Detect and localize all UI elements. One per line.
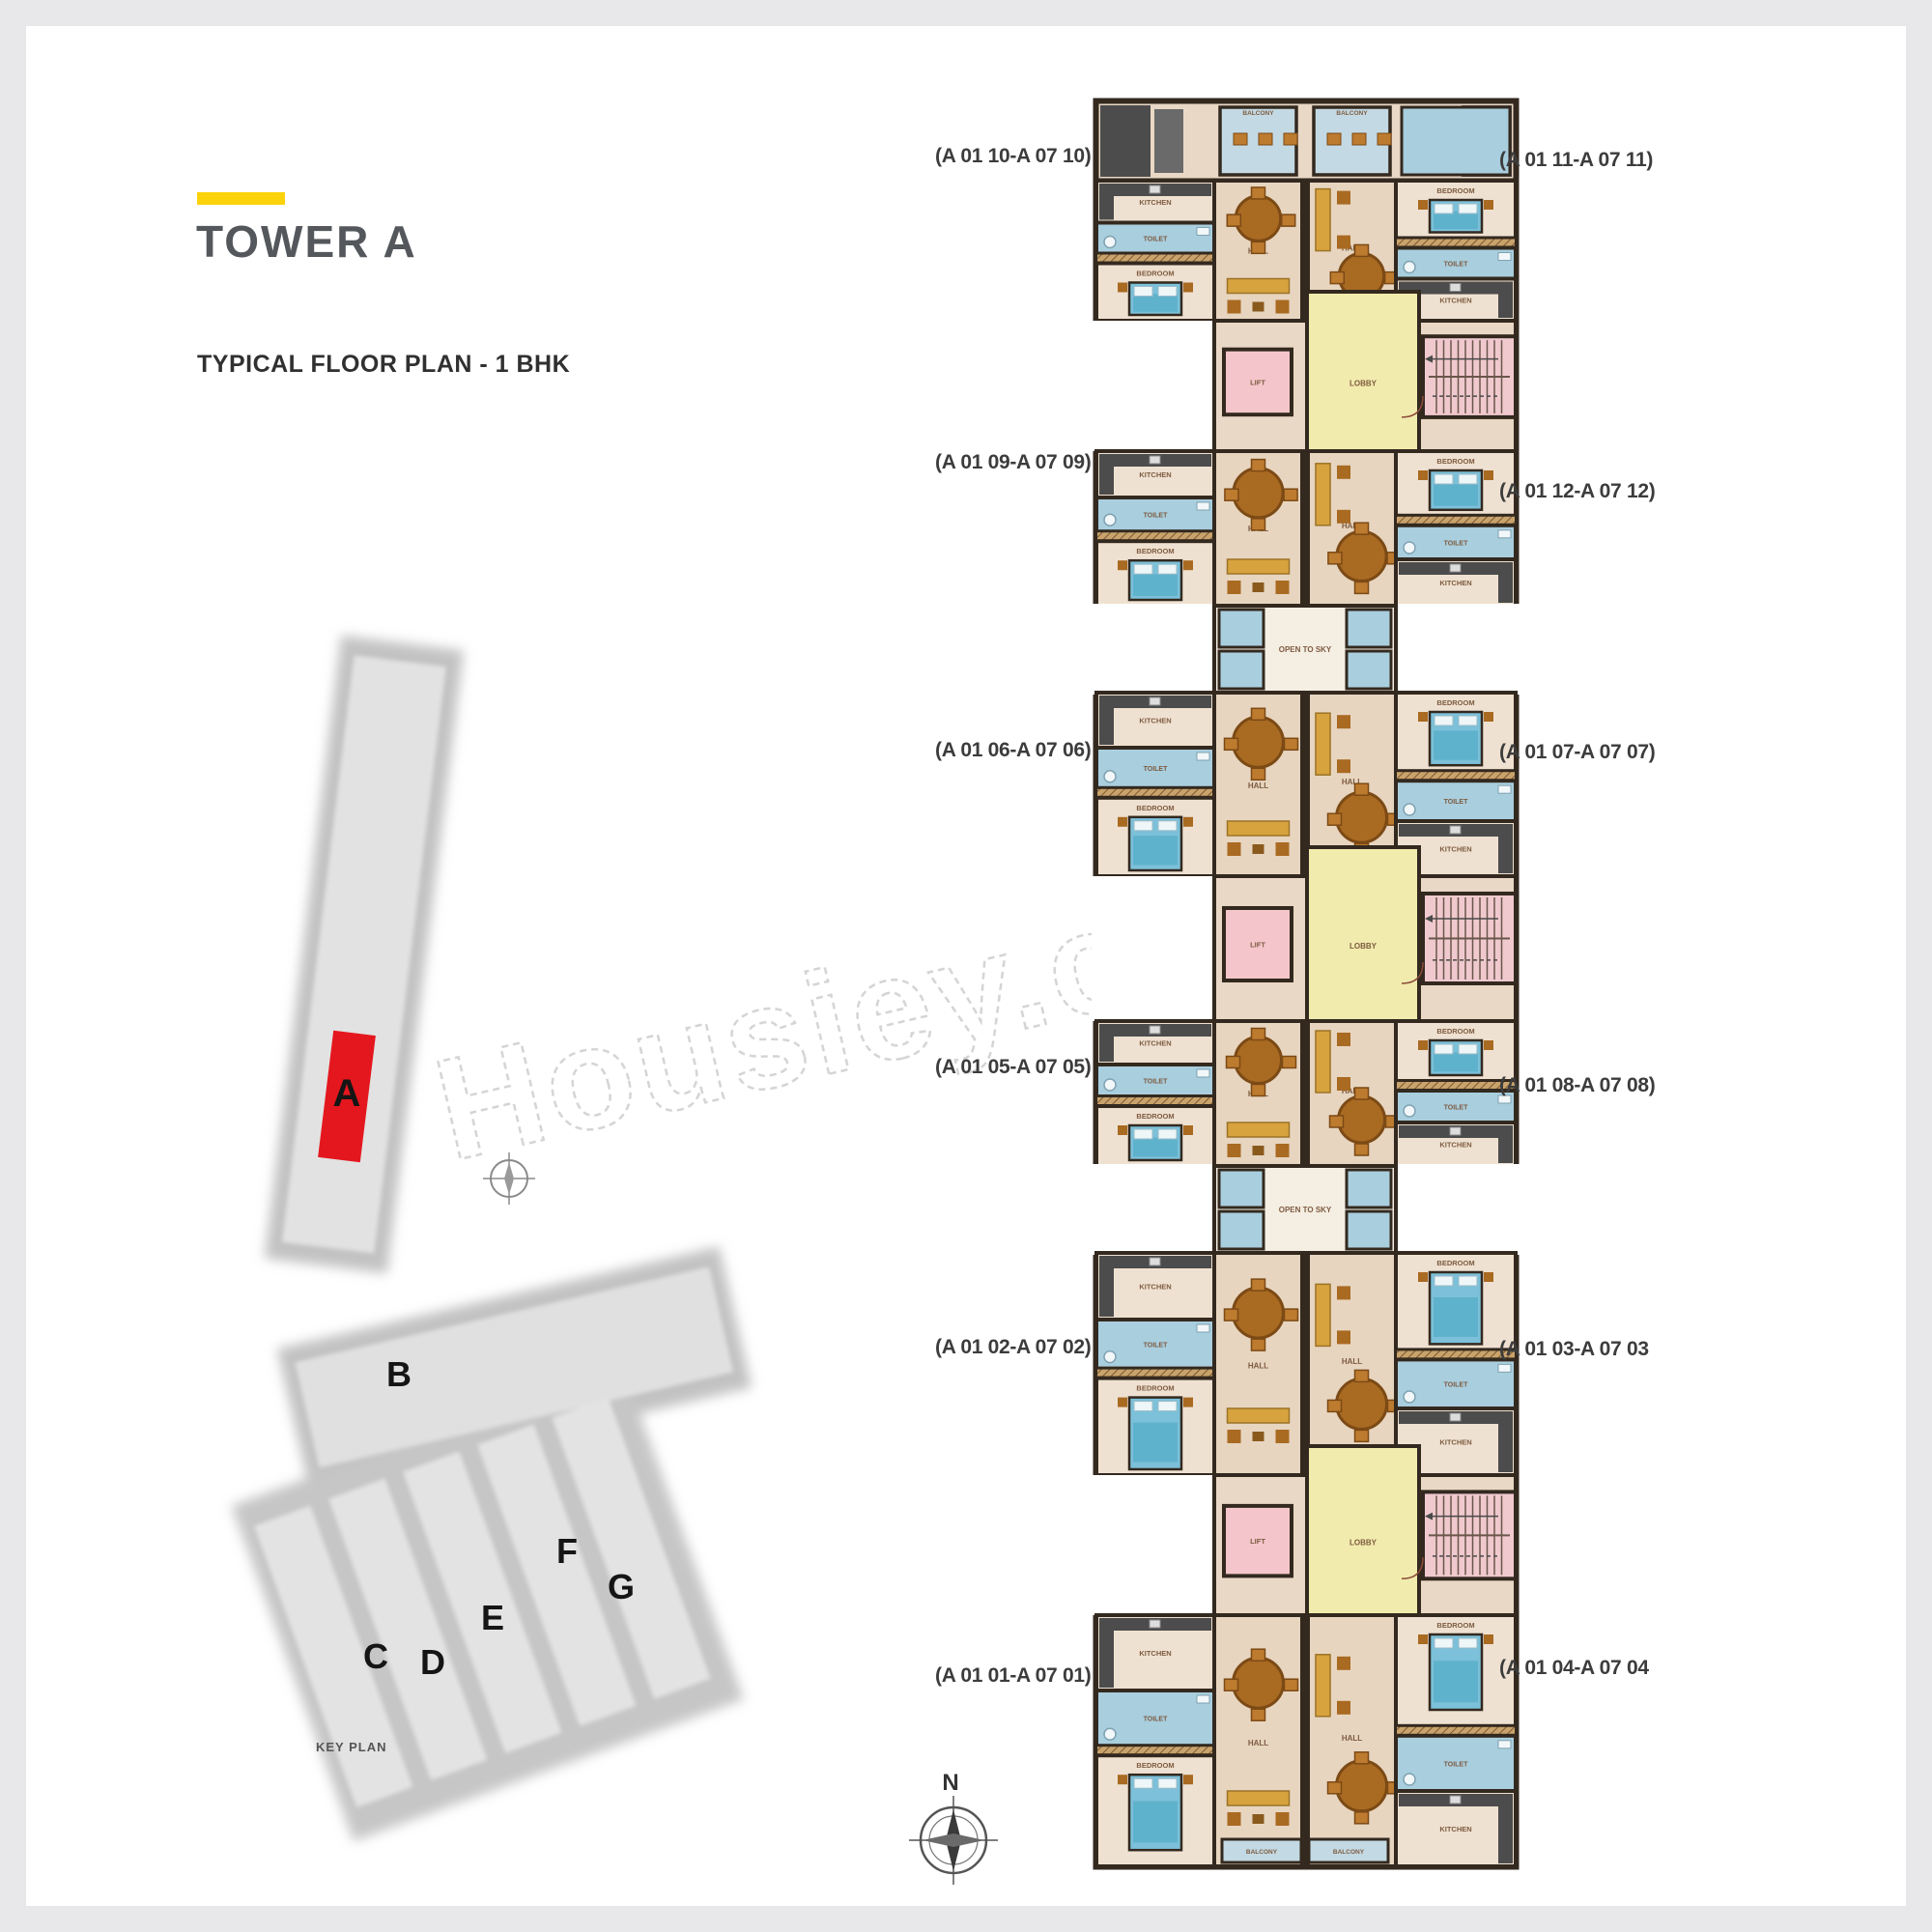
- floor-plan-artwork: ABCDEFG Housiey.comBALCONYBALCONYKITCHEN…: [26, 26, 1932, 1932]
- sheet: ABCDEFG Housiey.comBALCONYBALCONYKITCHEN…: [26, 26, 1906, 1906]
- svg-text:BEDROOM: BEDROOM: [1436, 1259, 1474, 1267]
- svg-text:OPEN TO SKY: OPEN TO SKY: [1279, 1206, 1332, 1214]
- svg-text:BEDROOM: BEDROOM: [1136, 804, 1174, 812]
- svg-text:KITCHEN: KITCHEN: [1139, 1649, 1171, 1658]
- svg-text:BEDROOM: BEDROOM: [1436, 1027, 1474, 1036]
- svg-text:HALL: HALL: [1342, 1734, 1362, 1743]
- svg-text:A: A: [333, 1072, 361, 1115]
- svg-text:KITCHEN: KITCHEN: [1139, 1039, 1171, 1048]
- svg-text:LOBBY: LOBBY: [1350, 380, 1378, 388]
- svg-text:KITCHEN: KITCHEN: [1439, 1438, 1471, 1447]
- svg-text:BALCONY: BALCONY: [1333, 1849, 1365, 1856]
- unit-range-label: (A 01 05-A 07 05): [935, 1056, 1091, 1079]
- accent-bar: [197, 192, 285, 205]
- svg-text:G: G: [608, 1567, 635, 1606]
- svg-text:KITCHEN: KITCHEN: [1139, 717, 1171, 725]
- svg-text:BEDROOM: BEDROOM: [1436, 186, 1474, 195]
- unit-range-label: (A 01 03-A 07 03: [1499, 1338, 1649, 1361]
- svg-text:D: D: [420, 1642, 445, 1682]
- lightwell: OPEN TO SKY: [1092, 604, 1520, 695]
- svg-text:BALCONY: BALCONY: [1242, 110, 1274, 117]
- svg-text:TOILET: TOILET: [1444, 1382, 1468, 1389]
- svg-text:LIFT: LIFT: [1250, 941, 1265, 950]
- svg-text:TOILET: TOILET: [1444, 262, 1468, 269]
- svg-text:KITCHEN: KITCHEN: [1139, 198, 1171, 207]
- north-compass-icon: N: [909, 1770, 998, 1885]
- lightwell: OPEN TO SKY: [1092, 1164, 1520, 1255]
- svg-text:LOBBY: LOBBY: [1350, 1539, 1378, 1548]
- floor-plan: BALCONYBALCONYKITCHENTOILETBEDROOMHALLHA…: [1092, 101, 1520, 1866]
- svg-text:C: C: [363, 1636, 388, 1676]
- unit-range-label: (A 01 01-A 07 01): [935, 1664, 1091, 1688]
- svg-text:BEDROOM: BEDROOM: [1436, 457, 1474, 466]
- svg-text:LIFT: LIFT: [1250, 1537, 1265, 1546]
- unit-range-label: (A 01 11-A 07 11): [1499, 149, 1653, 172]
- svg-text:HALL: HALL: [1248, 1739, 1268, 1747]
- svg-text:BEDROOM: BEDROOM: [1136, 1761, 1174, 1770]
- svg-text:KITCHEN: KITCHEN: [1439, 579, 1471, 587]
- unit-range-label: (A 01 02-A 07 02): [935, 1336, 1091, 1359]
- svg-text:TOILET: TOILET: [1444, 799, 1468, 806]
- svg-text:TOILET: TOILET: [1144, 1079, 1168, 1086]
- unit-pair: KITCHENTOILETBEDROOMHALLHALLBEDROOMTOILE…: [1096, 451, 1516, 606]
- unit-range-label: (A 01 06-A 07 06): [935, 739, 1091, 762]
- unit-pair: KITCHENTOILETBEDROOMHALLHALLBEDROOMTOILE…: [1096, 1253, 1516, 1475]
- svg-text:BALCONY: BALCONY: [1246, 1849, 1278, 1856]
- page: ABCDEFG Housiey.comBALCONYBALCONYKITCHEN…: [0, 0, 1932, 1932]
- svg-text:BEDROOM: BEDROOM: [1136, 547, 1174, 555]
- unit-range-label: (A 01 08-A 07 08): [1499, 1074, 1655, 1097]
- svg-text:KITCHEN: KITCHEN: [1439, 1825, 1471, 1833]
- svg-text:HALL: HALL: [1248, 781, 1268, 790]
- key-plan: ABCDEFG: [231, 636, 752, 1842]
- svg-text:LOBBY: LOBBY: [1350, 942, 1378, 951]
- svg-text:OPEN TO SKY: OPEN TO SKY: [1279, 645, 1332, 654]
- unit-pair: KITCHENTOILETBEDROOMHALLHALLBEDROOMTOILE…: [1096, 1615, 1516, 1866]
- svg-text:N: N: [942, 1770, 958, 1796]
- svg-text:LIFT: LIFT: [1250, 378, 1265, 386]
- svg-text:TOILET: TOILET: [1144, 1717, 1168, 1723]
- svg-text:TOILET: TOILET: [1144, 237, 1168, 243]
- unit-pair: KITCHENTOILETBEDROOMHALLHALLBEDROOMTOILE…: [1096, 1021, 1516, 1166]
- svg-text:TOILET: TOILET: [1144, 513, 1168, 520]
- svg-text:B: B: [386, 1354, 412, 1394]
- unit-range-label: (A 01 09-A 07 09): [935, 451, 1091, 474]
- svg-text:HALL: HALL: [1342, 1357, 1362, 1366]
- svg-text:TOILET: TOILET: [1144, 1342, 1168, 1349]
- key-plan-caption: KEY PLAN: [316, 1740, 387, 1754]
- unit-range-label: (A 01 12-A 07 12): [1499, 480, 1655, 503]
- page-title: TOWER A: [196, 215, 417, 268]
- svg-text:BEDROOM: BEDROOM: [1136, 1112, 1174, 1121]
- svg-text:HALL: HALL: [1248, 1362, 1268, 1371]
- svg-text:KITCHEN: KITCHEN: [1439, 845, 1471, 854]
- svg-text:KITCHEN: KITCHEN: [1439, 1141, 1471, 1150]
- svg-text:F: F: [556, 1531, 578, 1571]
- unit-range-label: (A 01 04-A 07 04: [1499, 1657, 1649, 1680]
- svg-text:BEDROOM: BEDROOM: [1436, 1621, 1474, 1630]
- svg-text:TOILET: TOILET: [1444, 1105, 1468, 1112]
- svg-text:BEDROOM: BEDROOM: [1136, 270, 1174, 278]
- balcony-row: BALCONYBALCONY: [1096, 101, 1516, 181]
- svg-text:KITCHEN: KITCHEN: [1439, 296, 1471, 304]
- svg-text:TOILET: TOILET: [1444, 540, 1468, 547]
- svg-text:KITCHEN: KITCHEN: [1139, 470, 1171, 479]
- unit-range-label: (A 01 07-A 07 07): [1499, 741, 1655, 764]
- page-subtitle: TYPICAL FLOOR PLAN - 1 BHK: [197, 351, 570, 379]
- svg-text:BEDROOM: BEDROOM: [1436, 698, 1474, 707]
- svg-text:KITCHEN: KITCHEN: [1139, 1283, 1171, 1292]
- svg-text:TOILET: TOILET: [1444, 1761, 1468, 1768]
- svg-text:BEDROOM: BEDROOM: [1136, 1384, 1174, 1393]
- svg-text:E: E: [481, 1598, 504, 1637]
- unit-range-label: (A 01 10-A 07 10): [935, 145, 1091, 168]
- svg-text:TOILET: TOILET: [1144, 766, 1168, 773]
- svg-text:BALCONY: BALCONY: [1336, 110, 1368, 117]
